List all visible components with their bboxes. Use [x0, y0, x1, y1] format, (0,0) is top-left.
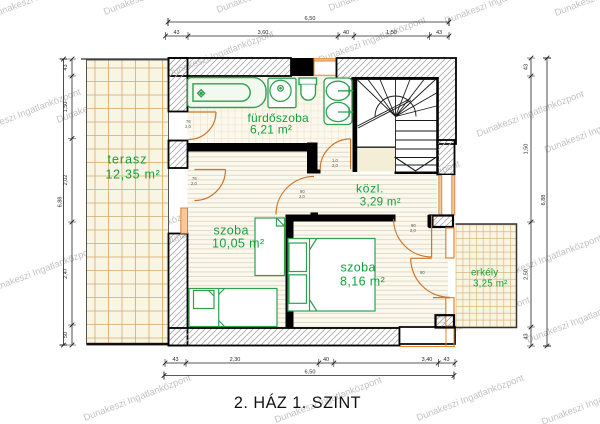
svg-text:43: 43: [172, 357, 178, 363]
svg-text:1,50: 1,50: [524, 144, 530, 155]
svg-text:6,88: 6,88: [541, 195, 547, 206]
svg-text:2,30: 2,30: [230, 357, 241, 363]
svg-text:43: 43: [436, 30, 442, 36]
svg-text:2,0: 2,0: [410, 228, 416, 233]
svg-text:43: 43: [63, 64, 69, 70]
svg-text:50: 50: [63, 332, 69, 338]
svg-text:1,50: 1,50: [386, 30, 397, 36]
svg-text:43: 43: [524, 64, 530, 70]
svg-text:90: 90: [420, 270, 425, 275]
svg-text:3,40: 3,40: [422, 357, 433, 363]
svg-text:6,88: 6,88: [58, 197, 64, 208]
svg-text:43: 43: [173, 30, 179, 36]
svg-text:szoba: szoba: [341, 260, 376, 274]
svg-text:3,29 m²: 3,29 m²: [360, 197, 401, 209]
svg-text:1,50: 1,50: [63, 102, 69, 113]
svg-text:2,0: 2,0: [191, 181, 197, 186]
svg-text:40: 40: [343, 30, 349, 36]
svg-text:3,60: 3,60: [258, 30, 269, 36]
svg-text:40: 40: [323, 357, 329, 363]
svg-text:szoba: szoba: [214, 224, 249, 238]
svg-text:6,50: 6,50: [305, 370, 316, 376]
svg-text:43: 43: [524, 333, 530, 339]
svg-text:6,21 m²: 6,21 m²: [250, 123, 292, 137]
svg-text:6,50: 6,50: [305, 16, 316, 22]
svg-text:2,50: 2,50: [524, 269, 530, 280]
svg-text:terasz: terasz: [108, 153, 148, 167]
svg-text:2,02: 2,02: [63, 175, 69, 186]
svg-text:erkély: erkély: [471, 267, 498, 278]
svg-text:közl.: közl.: [356, 182, 384, 196]
svg-text:43: 43: [443, 357, 449, 363]
svg-text:10,05 m²: 10,05 m²: [212, 237, 265, 251]
svg-text:2,0: 2,0: [185, 124, 191, 129]
svg-text:2,47: 2,47: [63, 268, 69, 279]
svg-text:8,16 m²: 8,16 m²: [340, 275, 385, 289]
svg-text:2. HÁZ 1. SZINT: 2. HÁZ 1. SZINT: [234, 393, 361, 412]
svg-text:3,25 m²: 3,25 m²: [473, 278, 508, 289]
svg-text:2,0: 2,0: [299, 194, 305, 199]
svg-text:12,35 m²: 12,35 m²: [106, 168, 161, 182]
svg-text:2,0: 2,0: [332, 163, 338, 168]
